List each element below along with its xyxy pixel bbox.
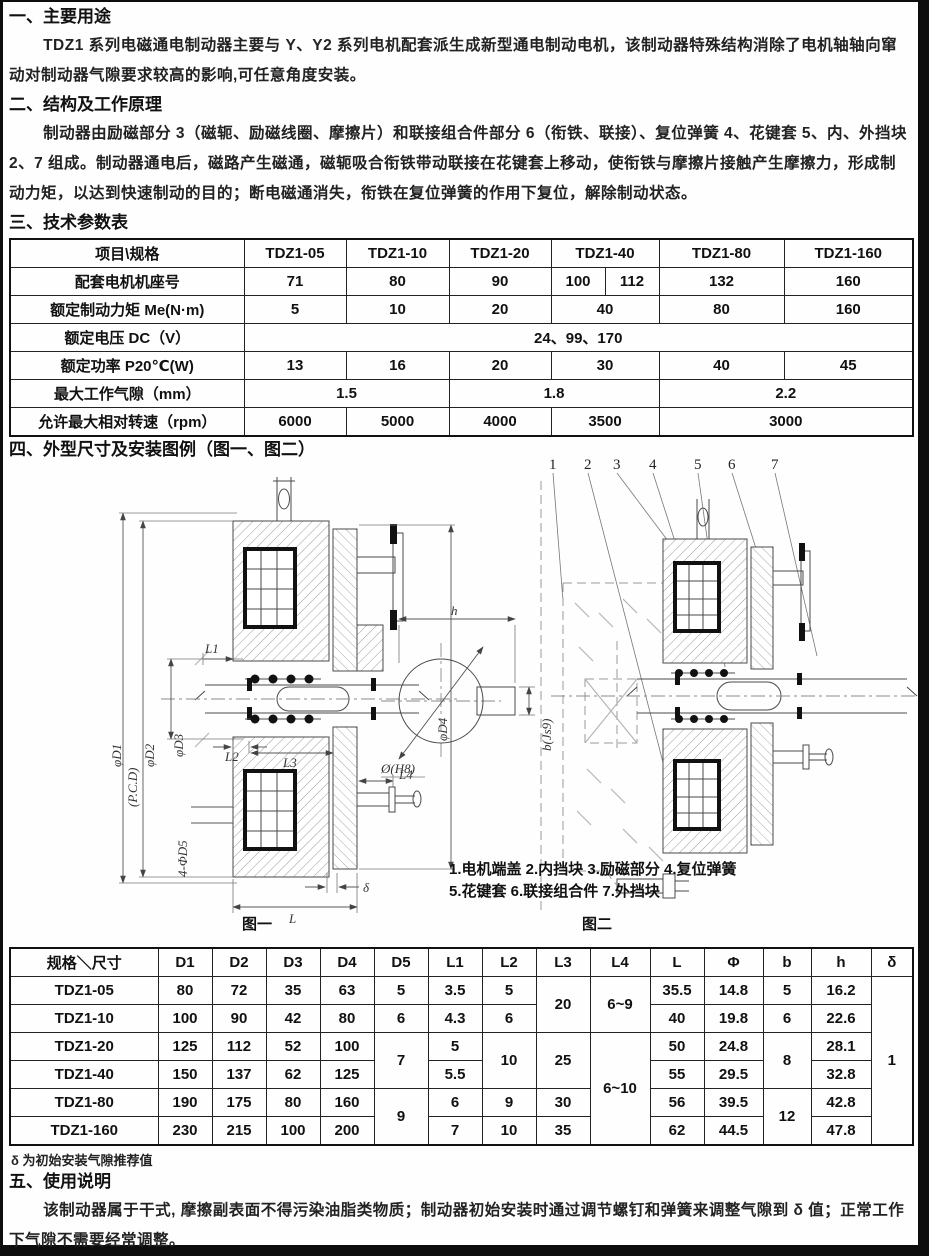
dim-cell: 30 <box>536 1089 590 1117</box>
dim-cell: 5 <box>763 977 811 1005</box>
dim-cell: 190 <box>158 1089 212 1117</box>
param-cell: 30 <box>551 352 659 380</box>
spec-label: TDZ1-05 <box>10 977 158 1005</box>
params-row-voltage: 额定电压 DC（V） 24、99、170 <box>10 324 913 352</box>
dims-header: D3 <box>266 948 320 977</box>
dim-cell: 80 <box>320 1005 374 1033</box>
part-number-4: 4 <box>649 457 657 473</box>
dim-cell: 35.5 <box>650 977 704 1005</box>
dim-cell: 9 <box>482 1089 536 1117</box>
fig1-springs-lower <box>245 715 321 724</box>
dims-header-row: 规格＼尺寸 D1 D2 D3 D4 D5 L1 L2 L3 L4 L Φ b h… <box>10 948 913 977</box>
params-header-col: TDZ1-80 <box>659 239 784 268</box>
param-cell: 3000 <box>659 408 913 437</box>
dims-note: δ 为初始安装气隙推荐值 <box>11 1150 912 1169</box>
dim-cell: 24.8 <box>704 1033 763 1061</box>
param-cell: 80 <box>659 296 784 324</box>
dim-cell: 160 <box>320 1089 374 1117</box>
row-label: 配套电机机座号 <box>10 268 244 296</box>
dims-header: L3 <box>536 948 590 977</box>
dim-cell: 40 <box>650 1005 704 1033</box>
param-cell: 1.5 <box>244 380 449 408</box>
param-cell: 6000 <box>244 408 346 437</box>
dim-cell: 42 <box>266 1005 320 1033</box>
fig1-label-pcd: (P.C.D) <box>125 768 140 807</box>
dim-cell: 1 <box>871 977 913 1146</box>
dim-cell: 9 <box>374 1089 428 1146</box>
param-cell: 100 <box>551 268 605 296</box>
param-cell: 3500 <box>551 408 659 437</box>
fig1-top-bolt <box>273 477 295 521</box>
fig2-side-bolt <box>773 745 833 769</box>
param-cell: 5 <box>244 296 346 324</box>
params-row-torque: 额定制动力矩 Me(N·m) 5 10 20 40 80 160 <box>10 296 913 324</box>
section2-paragraph: 制动器由励磁部分 3（磁轭、励磁线圈、摩擦片）和联接组合件部分 6（衔铁、联接）… <box>9 119 912 209</box>
section1-paragraph: TDZ1 系列电磁通电制动器主要与 Y、Y2 系列电机配套派生成新型通电制动电机… <box>9 31 912 91</box>
dims-header: L <box>650 948 704 977</box>
dim-cell: 42.8 <box>811 1089 871 1117</box>
dim-cell: 10 <box>482 1117 536 1146</box>
dim-cell: 32.8 <box>811 1061 871 1089</box>
dim-cell: 6~9 <box>590 977 650 1033</box>
fig1-label-l2: L2 <box>224 749 239 764</box>
section1-heading: 一、主要用途 <box>9 6 912 28</box>
fig1-label-d3: φD3 <box>171 733 186 757</box>
dim-cell: 50 <box>650 1033 704 1061</box>
dim-cell: 35 <box>266 977 320 1005</box>
fig1-seal <box>390 524 397 544</box>
spec-label: TDZ1-20 <box>10 1033 158 1061</box>
param-cell: 90 <box>449 268 551 296</box>
dim-cell: 80 <box>266 1089 320 1117</box>
dim-cell: 112 <box>212 1033 266 1061</box>
param-cell: 10 <box>346 296 449 324</box>
params-row-frame: 配套电机机座号 71 80 90 100 112 132 160 <box>10 268 913 296</box>
dim-cell: 44.5 <box>704 1117 763 1146</box>
dim-cell: 6 <box>763 1005 811 1033</box>
dims-row: TDZ1-05 80 72 35 63 5 3.5 5 20 6~9 35.5 … <box>10 977 913 1005</box>
part-number-5: 5 <box>694 457 702 473</box>
params-header-col: TDZ1-10 <box>346 239 449 268</box>
fig2-lower-armature <box>751 723 773 845</box>
figures-area: φD1 (P.C.D) φD2 φD3 φD4 L1 <box>9 461 912 943</box>
dim-cell: 14.8 <box>704 977 763 1005</box>
params-row-speed: 允许最大相对转速（rpm） 6000 5000 4000 3500 3000 <box>10 408 913 437</box>
part-number-2: 2 <box>584 457 592 473</box>
fig1-lower-armature <box>333 727 357 869</box>
dim-cell: 175 <box>212 1089 266 1117</box>
keyway-label-bore: Ø(H8) <box>380 761 415 776</box>
dim-cell: 10 <box>482 1033 536 1089</box>
dim-cell: 5 <box>374 977 428 1005</box>
fig1-label-delta: δ <box>363 880 370 895</box>
param-cell: 80 <box>346 268 449 296</box>
keyway-label-h: h <box>451 603 458 618</box>
section2-heading: 二、结构及工作原理 <box>9 94 912 116</box>
fig1-label-l3: L3 <box>282 755 297 770</box>
fig2-lower-coil <box>675 761 719 829</box>
dims-header: h <box>811 948 871 977</box>
dim-cell: 3.5 <box>428 977 482 1005</box>
figure2-legend: 1.电机端盖 2.内挡块 3.励磁部分 4.复位弹簧 5.花键套 6.联接组合件… <box>449 859 737 903</box>
fig1-dim-d3: φD3 <box>167 659 243 757</box>
fig2-top-bolt <box>697 499 709 539</box>
params-header-col: TDZ1-20 <box>449 239 551 268</box>
dim-cell: 39.5 <box>704 1089 763 1117</box>
params-header-label: 项目\规格 <box>10 239 244 268</box>
dim-cell: 6 <box>428 1089 482 1117</box>
row-label: 额定功率 P20℃(W) <box>10 352 244 380</box>
param-cell: 2.2 <box>659 380 913 408</box>
dim-cell: 125 <box>158 1033 212 1061</box>
dims-header: D4 <box>320 948 374 977</box>
param-cell: 45 <box>784 352 913 380</box>
param-cell: 40 <box>659 352 784 380</box>
dim-cell: 215 <box>212 1117 266 1146</box>
param-cell: 40 <box>551 296 659 324</box>
fig2-upper-armature <box>751 547 773 669</box>
dims-header: L2 <box>482 948 536 977</box>
dim-cell: 20 <box>536 977 590 1033</box>
document-page: 一、主要用途 TDZ1 系列电磁通电制动器主要与 Y、Y2 系列电机配套派生成新… <box>3 2 918 1245</box>
dims-row: TDZ1-20 125 112 52 100 7 5 10 25 6~10 50… <box>10 1033 913 1061</box>
row-label: 最大工作气隙（mm） <box>10 380 244 408</box>
param-cell: 16 <box>346 352 449 380</box>
row-label: 额定制动力矩 Me(N·m) <box>10 296 244 324</box>
dim-cell: 5.5 <box>428 1061 482 1089</box>
dim-cell: 6 <box>374 1005 428 1033</box>
param-cell: 20 <box>449 296 551 324</box>
dims-header: D2 <box>212 948 266 977</box>
dims-header: δ <box>871 948 913 977</box>
params-table: 项目\规格 TDZ1-05 TDZ1-10 TDZ1-20 TDZ1-40 TD… <box>9 238 914 437</box>
dim-cell: 150 <box>158 1061 212 1089</box>
dim-cell: 137 <box>212 1061 266 1089</box>
params-header-col: TDZ1-160 <box>784 239 913 268</box>
dim-cell: 62 <box>266 1061 320 1089</box>
fig2-springs-lower <box>671 715 735 723</box>
dim-cell: 6~10 <box>590 1033 650 1146</box>
fig1-label-d1: φD1 <box>109 744 124 767</box>
fig2-flange-stem <box>773 571 803 585</box>
fig1-dim-d5: 4-ΦD5 <box>175 807 233 877</box>
param-cell: 20 <box>449 352 551 380</box>
figure1-caption: 图一 <box>207 913 307 934</box>
figure2-legend-line1: 1.电机端盖 2.内挡块 3.励磁部分 4.复位弹簧 <box>449 859 737 881</box>
param-cell: 160 <box>784 296 913 324</box>
fig1-upper-coil <box>245 549 295 627</box>
params-header-row: 项目\规格 TDZ1-05 TDZ1-10 TDZ1-20 TDZ1-40 TD… <box>10 239 913 268</box>
fig1-label-l1: L1 <box>204 641 219 656</box>
fig1-dim-d1: φD1 (P.C.D) <box>109 513 237 883</box>
dim-cell: 7 <box>374 1033 428 1089</box>
params-header-col: TDZ1-40 <box>551 239 659 268</box>
dim-cell: 5 <box>482 977 536 1005</box>
dim-cell: 100 <box>266 1117 320 1146</box>
dim-cell: 55 <box>650 1061 704 1089</box>
param-cell: 1.8 <box>449 380 659 408</box>
fig1-lower-coil <box>245 771 295 849</box>
spec-label: TDZ1-40 <box>10 1061 158 1089</box>
dims-row: TDZ1-10 100 90 42 80 6 4.3 6 40 19.8 6 2… <box>10 1005 913 1033</box>
params-row-power: 额定功率 P20℃(W) 13 16 20 30 40 45 <box>10 352 913 380</box>
params-header-col: TDZ1-05 <box>244 239 346 268</box>
spec-label: TDZ1-10 <box>10 1005 158 1033</box>
dim-cell: 22.6 <box>811 1005 871 1033</box>
dim-cell: 7 <box>428 1117 482 1146</box>
section5-heading: 五、使用说明 <box>9 1171 912 1193</box>
dims-header: L1 <box>428 948 482 977</box>
dim-cell: 63 <box>320 977 374 1005</box>
param-cell: 24、99、170 <box>244 324 913 352</box>
part-number-7: 7 <box>771 457 779 473</box>
dim-cell: 12 <box>763 1089 811 1146</box>
dim-cell: 100 <box>320 1033 374 1061</box>
fig1-label-d2: φD2 <box>142 743 157 767</box>
dim-cell: 52 <box>266 1033 320 1061</box>
dim-cell: 80 <box>158 977 212 1005</box>
param-cell: 5000 <box>346 408 449 437</box>
params-row-gap: 最大工作气隙（mm） 1.5 1.8 2.2 <box>10 380 913 408</box>
dims-table: 规格＼尺寸 D1 D2 D3 D4 D5 L1 L2 L3 L4 L Φ b h… <box>9 947 914 1146</box>
dims-header: D1 <box>158 948 212 977</box>
fig2-seal <box>799 543 805 561</box>
param-cell: 71 <box>244 268 346 296</box>
part-number-6: 6 <box>728 457 736 473</box>
figure2-caption: 图二 <box>547 913 647 934</box>
dim-cell: 230 <box>158 1117 212 1146</box>
dim-cell: 29.5 <box>704 1061 763 1089</box>
dims-header-label: 规格＼尺寸 <box>10 948 158 977</box>
dim-cell: 125 <box>320 1061 374 1089</box>
dim-cell: 4.3 <box>428 1005 482 1033</box>
fig1-dim-l1: L1 <box>203 641 233 665</box>
section5-paragraph: 该制动器属于干式, 摩擦副表面不得污染油脂类物质；制动器初始安装时通过调节螺钉和… <box>9 1196 912 1256</box>
param-cell: 112 <box>605 268 659 296</box>
dim-cell: 6 <box>482 1005 536 1033</box>
dim-cell: 47.8 <box>811 1117 871 1146</box>
section3-heading: 三、技术参数表 <box>9 212 912 234</box>
fig2-upper-coil <box>675 563 719 631</box>
param-cell: 4000 <box>449 408 551 437</box>
fig2-springs-upper <box>671 669 735 677</box>
fig1-label-d5: 4-ΦD5 <box>175 840 190 877</box>
figure2-drawing: 1 2 3 4 5 6 7 <box>467 451 929 921</box>
dim-cell: 19.8 <box>704 1005 763 1033</box>
dim-cell: 16.2 <box>811 977 871 1005</box>
fig1-flange-stem <box>357 557 395 573</box>
param-cell: 132 <box>659 268 784 296</box>
dim-cell: 8 <box>763 1033 811 1089</box>
dim-cell: 200 <box>320 1117 374 1146</box>
param-cell: 13 <box>244 352 346 380</box>
part-number-1: 1 <box>549 457 557 473</box>
dim-cell: 100 <box>158 1005 212 1033</box>
row-label: 额定电压 DC（V） <box>10 324 244 352</box>
fig2-seal <box>799 623 805 641</box>
dim-cell: 5 <box>428 1033 482 1061</box>
dim-cell: 25 <box>536 1033 590 1089</box>
dims-header: b <box>763 948 811 977</box>
spec-label: TDZ1-80 <box>10 1089 158 1117</box>
dim-cell: 90 <box>212 1005 266 1033</box>
dims-row: TDZ1-80 190 175 80 160 9 6 9 30 56 39.5 … <box>10 1089 913 1117</box>
dims-header: L4 <box>590 948 650 977</box>
dim-cell: 56 <box>650 1089 704 1117</box>
spec-label: TDZ1-160 <box>10 1117 158 1146</box>
dims-header: Φ <box>704 948 763 977</box>
row-label: 允许最大相对转速（rpm） <box>10 408 244 437</box>
figure2-legend-line2: 5.花键套 6.联接组合件 7.外挡块 <box>449 881 737 903</box>
fig1-upper-armature <box>333 529 357 671</box>
dim-cell: 62 <box>650 1117 704 1146</box>
param-cell: 160 <box>784 268 913 296</box>
dim-cell: 72 <box>212 977 266 1005</box>
dim-cell: 28.1 <box>811 1033 871 1061</box>
dims-header: D5 <box>374 948 428 977</box>
dim-cell: 35 <box>536 1117 590 1146</box>
fig1-springs-upper <box>245 675 321 684</box>
part-number-3: 3 <box>613 457 621 473</box>
